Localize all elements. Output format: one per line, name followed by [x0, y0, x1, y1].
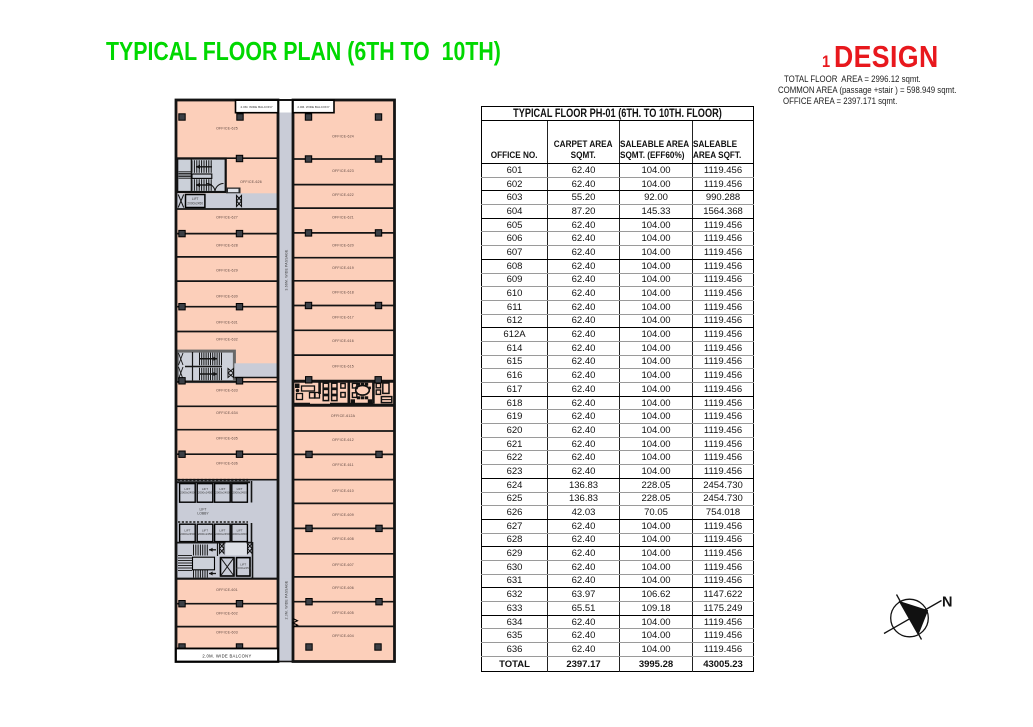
- svg-text:OFFICE-629: OFFICE-629: [216, 269, 238, 273]
- svg-text:3.66M. WIDE PASSAGE: 3.66M. WIDE PASSAGE: [284, 249, 288, 290]
- svg-text:OFFICE-628: OFFICE-628: [216, 244, 238, 248]
- svg-text:OFFICE-609: OFFICE-609: [332, 513, 354, 517]
- svg-text:OFFICE-605: OFFICE-605: [332, 611, 354, 615]
- svg-text:OFFICE-625: OFFICE-625: [216, 127, 238, 131]
- svg-text:OFFICE-612: OFFICE-612: [332, 438, 354, 442]
- svg-text:2000x2450: 2000x2450: [180, 532, 195, 536]
- svg-text:OFFICE-606: OFFICE-606: [332, 586, 354, 590]
- svg-text:2000x2450: 2000x2450: [187, 201, 203, 205]
- svg-text:OFFICE-627: OFFICE-627: [216, 216, 238, 220]
- svg-text:OFFICE-632: OFFICE-632: [216, 338, 238, 342]
- svg-text:2000x2450: 2000x2450: [236, 566, 251, 570]
- svg-text:2000x2450: 2000x2450: [198, 532, 213, 536]
- svg-text:OFFICE-617: OFFICE-617: [332, 316, 354, 320]
- svg-text:OFFICE-621: OFFICE-621: [332, 216, 354, 220]
- svg-text:N: N: [942, 595, 952, 611]
- svg-text:OFFICE-603: OFFICE-603: [216, 631, 238, 635]
- svg-text:2.0M. WIDE BALCONY: 2.0M. WIDE BALCONY: [297, 105, 329, 109]
- svg-text:2000x2450: 2000x2450: [180, 490, 195, 494]
- svg-text:OFFICE-622: OFFICE-622: [332, 193, 354, 197]
- svg-text:2000x2450: 2000x2450: [215, 490, 230, 494]
- svg-text:OFFICE-636: OFFICE-636: [216, 462, 238, 466]
- svg-text:2000x2450: 2000x2450: [232, 490, 247, 494]
- svg-text:2.0M. WIDE PASSAGE: 2.0M. WIDE PASSAGE: [284, 580, 288, 619]
- svg-text:OFFICE-631: OFFICE-631: [216, 321, 238, 325]
- svg-text:OFFICE-619: OFFICE-619: [332, 266, 354, 270]
- svg-text:OFFICE-630: OFFICE-630: [216, 295, 238, 299]
- svg-text:2000x2450: 2000x2450: [215, 532, 230, 536]
- svg-text:OFFICE-607: OFFICE-607: [332, 563, 354, 567]
- svg-text:OFFICE-624: OFFICE-624: [332, 135, 354, 139]
- svg-text:2000x2450: 2000x2450: [232, 532, 247, 536]
- svg-text:OFFICE-618: OFFICE-618: [332, 291, 354, 295]
- svg-text:OFFICE-615: OFFICE-615: [332, 365, 354, 369]
- svg-text:OFFICE-612A: OFFICE-612A: [331, 414, 356, 418]
- svg-text:OFFICE-623: OFFICE-623: [332, 169, 354, 173]
- svg-text:OFFICE-601: OFFICE-601: [216, 588, 238, 592]
- svg-text:OFFICE-602: OFFICE-602: [216, 612, 238, 616]
- svg-text:OFFICE-634: OFFICE-634: [216, 411, 238, 415]
- svg-text:2000x2450: 2000x2450: [198, 490, 213, 494]
- svg-text:OFFICE-620: OFFICE-620: [332, 244, 354, 248]
- svg-text:OFFICE-633: OFFICE-633: [216, 389, 238, 393]
- svg-text:OFFICE-635: OFFICE-635: [216, 437, 238, 441]
- svg-text:2.0M. WIDE BALCONY: 2.0M. WIDE BALCONY: [202, 654, 251, 659]
- svg-text:OFFICE-616: OFFICE-616: [332, 339, 354, 343]
- svg-text:OFFICE-604: OFFICE-604: [332, 634, 354, 638]
- svg-text:OFFICE-611: OFFICE-611: [332, 463, 354, 467]
- svg-text:OFFICE-626: OFFICE-626: [240, 180, 262, 184]
- svg-text:LOBBY: LOBBY: [197, 512, 209, 516]
- svg-text:OFFICE-610: OFFICE-610: [332, 489, 354, 493]
- svg-text:OFFICE-608: OFFICE-608: [332, 537, 354, 541]
- svg-text:2.0M. WIDE BALCONY: 2.0M. WIDE BALCONY: [241, 105, 273, 109]
